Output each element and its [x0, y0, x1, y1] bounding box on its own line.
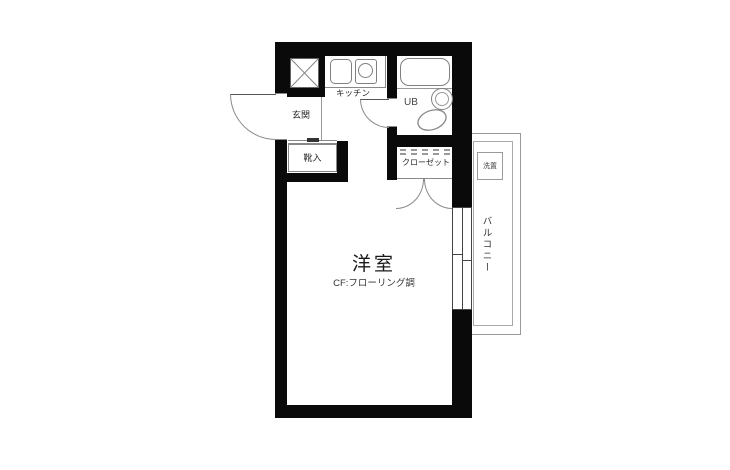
entrance-frame-top: [275, 93, 287, 94]
balcony-label: バルコニー: [481, 216, 491, 274]
wall-below-ub: [387, 135, 472, 147]
floor-plan: 洗置 バルコニー 靴入: [0, 0, 730, 470]
wall-right-lower: [452, 310, 472, 418]
main-room-floor-note: CF:フローリング調: [329, 279, 419, 289]
washbasin-bowl-icon: [435, 92, 449, 106]
entrance-step-line: [321, 97, 322, 141]
ub-door-swing-arc: [360, 99, 389, 128]
closet-door-right-arc: [424, 179, 452, 209]
wall-top: [275, 42, 472, 56]
shoe-cabinet-box: 靴入: [288, 144, 337, 172]
laundry-label: 洗置: [483, 163, 497, 170]
entrance-frame-bottom: [275, 139, 287, 140]
wall-right-upper: [452, 42, 472, 207]
window-center-line: [462, 208, 463, 309]
kitchen-sink-icon: [330, 59, 352, 84]
kitchen-label: キッチン: [336, 89, 370, 98]
wall-left-lower: [275, 140, 287, 418]
laundry-machine-box: 洗置: [477, 152, 503, 180]
main-room-label: 洋室: [329, 255, 419, 274]
shoe-cabinet-label: 靴入: [303, 154, 321, 163]
toilet-icon: [416, 107, 448, 133]
burner-icon: [358, 63, 373, 78]
wall-ub-left-upper: [387, 56, 397, 99]
window-sash-tick-left: [453, 254, 463, 255]
window-sash-tick-right: [462, 260, 471, 261]
step-marker: [307, 138, 319, 142]
closet-door-left-arc: [396, 179, 424, 209]
hanger-pipe-dash-2: [400, 153, 450, 155]
sliding-window: [452, 207, 472, 310]
entrance-door-swing-arc: [230, 94, 276, 140]
unit-bath-label: UB: [404, 98, 418, 108]
closet-label: クローゼット: [402, 159, 450, 167]
shaft-cross-icon: [291, 59, 318, 87]
kitchen-counter-right-edge: [385, 56, 386, 88]
wall-bottom: [275, 405, 472, 418]
hanger-pipe-dash-1: [400, 149, 450, 151]
entrance-label: 玄関: [292, 111, 310, 120]
bathtub-icon: [400, 58, 450, 86]
pipe-shaft-box: [290, 58, 319, 88]
wall-below-shoebox: [287, 173, 348, 182]
wall-left-upper: [275, 56, 287, 94]
